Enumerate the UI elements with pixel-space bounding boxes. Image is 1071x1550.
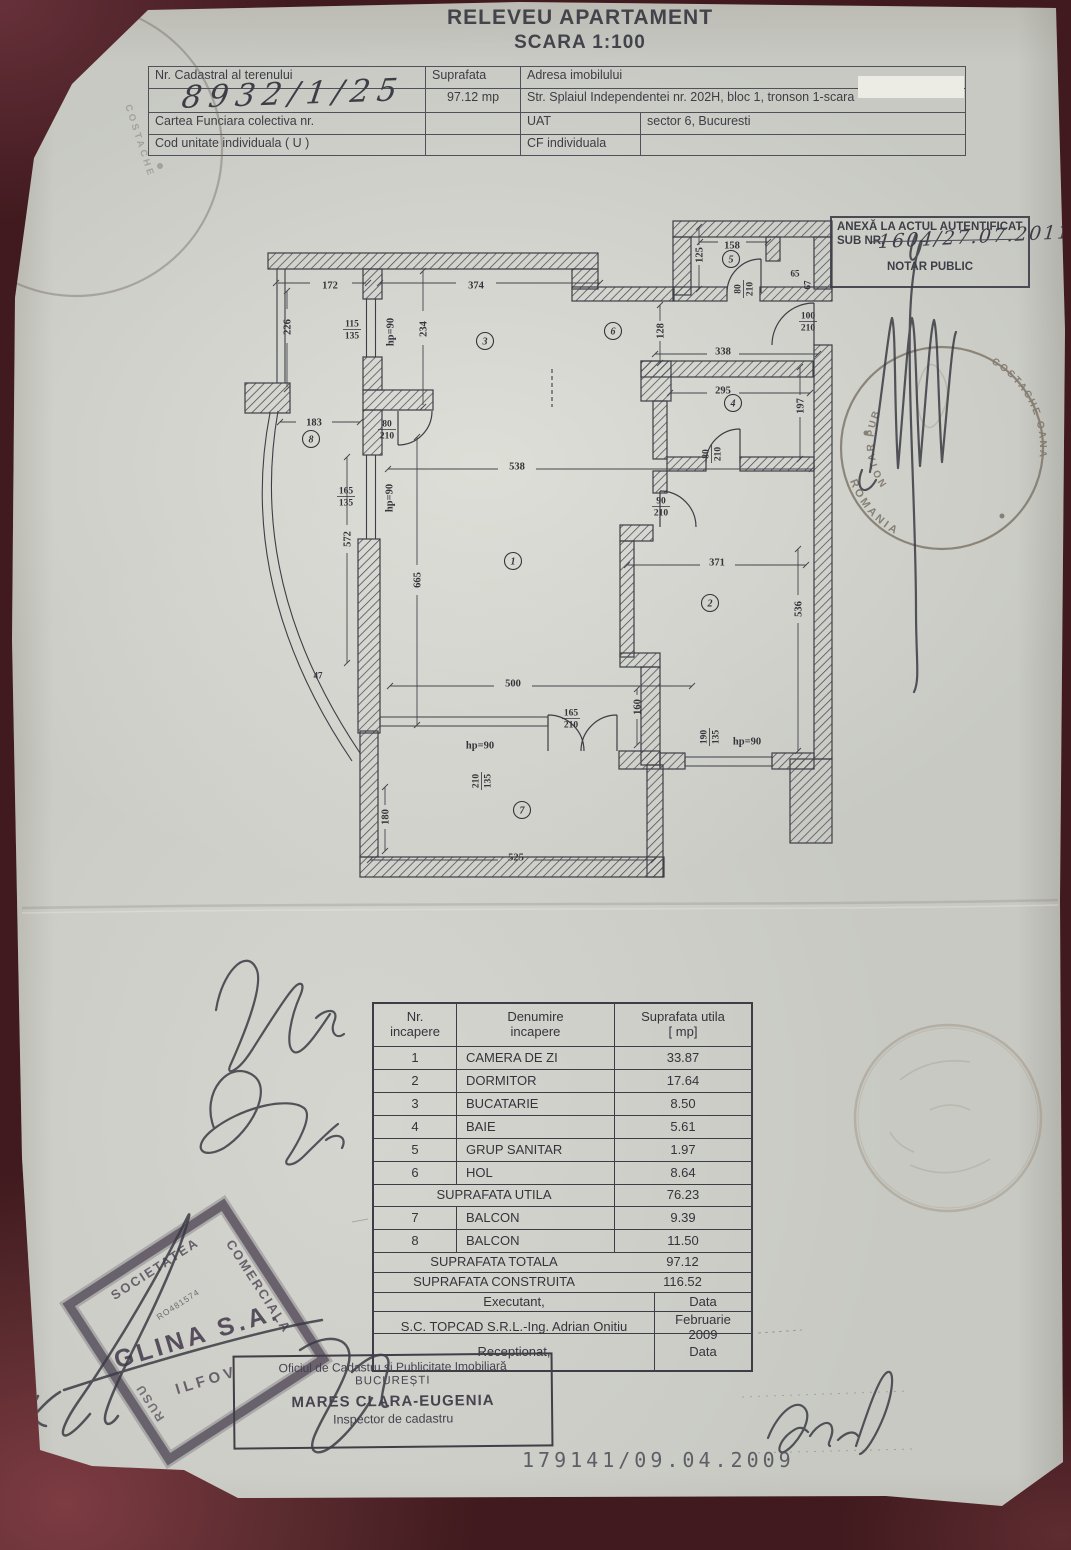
ink-mark [26,62,31,76]
table-row: 2DORMITOR17.64 [374,1069,751,1092]
col-header-nr: Nr. incapere [374,1004,456,1046]
table-row: 4BAIE5.61 [374,1115,751,1138]
summary-label: SUPRAFATA UTILA [374,1185,614,1206]
table-row: Nr. incapereDenumire incapereSuprafata u… [374,1004,751,1046]
table-row: SUPRAFATA UTILA76.23 [374,1184,751,1206]
svg-text:ROMANIA: ROMANIA [847,478,902,538]
inspector-name: MARES CLARA-EUGENIA [235,1391,551,1411]
inspector-title: Inspector de cadastru [235,1410,551,1427]
data-label: Data [654,1293,751,1311]
signature-bottom-right [768,1372,892,1454]
svg-text:NOTAR PUBLIC: NOTAR PUBLIC [0,0,889,488]
room-name: BALCON [456,1230,614,1252]
signature-lower [201,1071,344,1164]
notary-round-stamp: ROMANIA COSTACHE OANA NOTAR PUBLIC [0,0,1048,549]
table-row: 7BALCON9.39 [374,1206,751,1229]
room-nr: 2 [374,1070,456,1092]
stamp-emblem [917,364,947,427]
room-nr: 5 [374,1139,456,1161]
pen-mark-small [1022,1503,1042,1516]
photo-background: RELEVEU APARTAMENT SCARA 1:100 Nr. Cadas… [0,0,1071,1550]
rooms-table: Nr. incapereDenumire incapereSuprafata u… [372,1002,753,1372]
room-name: DORMITOR [456,1070,614,1092]
svg-text:ILFOV: ILFOV [173,1363,239,1398]
summary-label: SUPRAFATA CONSTRUITA [374,1273,614,1292]
room-nr: 8 [374,1230,456,1252]
table-row: SUPRAFATA CONSTRUITA116.52 [374,1272,751,1292]
table-row: Executant,Data [374,1292,751,1311]
room-name: BUCATARIE [456,1093,614,1115]
signature-upper [216,961,344,1071]
room-area: 17.64 [614,1070,751,1092]
col-header-name: Denumire incapere [456,1004,614,1046]
room-name: CAMERA DE ZI [456,1047,614,1069]
cadastru-office-stamp: Oficiul de Cadastru și Publicitate Imobi… [233,1352,554,1449]
table-row: 8BALCON11.50 [374,1229,751,1252]
table-row: 6HOL8.64 [374,1161,751,1184]
room-name: BAIE [456,1116,614,1138]
table-row: 3BUCATARIE8.50 [374,1092,751,1115]
room-area: 1.97 [614,1139,751,1161]
room-name: BALCON [456,1207,614,1229]
executant-label: Executant, [374,1293,654,1311]
room-nr: 4 [374,1116,456,1138]
room-area: 8.64 [614,1162,751,1184]
room-name: HOL [456,1162,614,1184]
room-area: 33.87 [614,1047,751,1069]
registration-number: 179141/09.04.2009 [522,1448,795,1472]
room-area: 9.39 [614,1207,751,1229]
room-nr: 7 [374,1207,456,1229]
svg-text:COSTACHE OANA: COSTACHE OANA [989,356,1048,459]
table-row: S.C. TOPCAD S.R.L.-Ing. Adrian OnitiuFeb… [374,1311,751,1333]
room-nr: 1 [374,1047,456,1069]
table-row: 1CAMERA DE ZI33.87 [374,1046,751,1069]
summary-value: 116.52 [614,1273,751,1292]
summary-value: 97.12 [614,1253,751,1272]
faint-round-stamp [855,1025,1041,1211]
table-row: SUPRAFATA TOTALA97.12 [374,1252,751,1272]
room-area: 11.50 [614,1230,751,1252]
cadastru-office-line2: BUCUREȘTI [235,1373,551,1388]
room-area: 8.50 [614,1093,751,1115]
room-nr: 3 [374,1093,456,1115]
document-paper: RELEVEU APARTAMENT SCARA 1:100 Nr. Cadas… [0,0,1071,1550]
summary-label: SUPRAFATA TOTALA [374,1253,614,1272]
data-label: Data [654,1334,751,1370]
svg-text:COSTACHE: COSTACHE [122,103,156,179]
room-name: GRUP SANITAR [456,1139,614,1161]
table-row: 5GRUP SANITAR1.97 [374,1138,751,1161]
corner-round-stamp: ROMANIA COSTACHE [0,4,222,296]
room-nr: 6 [374,1162,456,1184]
room-area: 5.61 [614,1116,751,1138]
col-header-area: Suprafata utila [ mp] [614,1004,751,1046]
summary-value: 76.23 [614,1185,751,1206]
